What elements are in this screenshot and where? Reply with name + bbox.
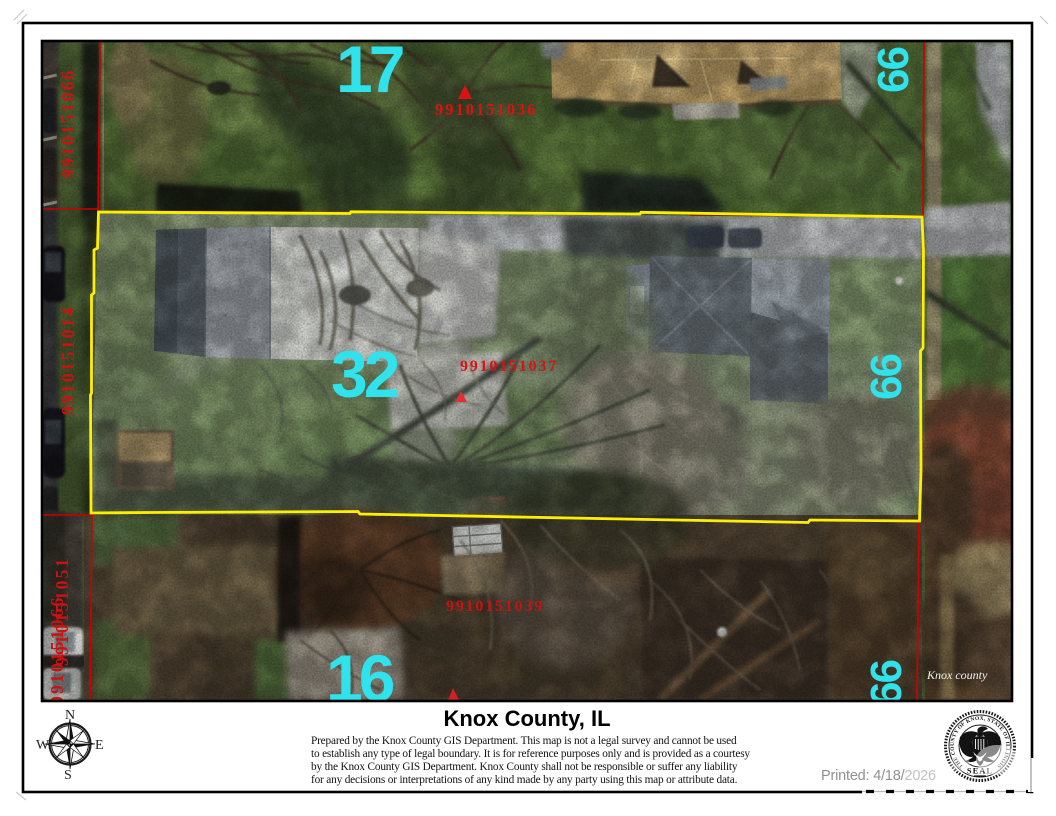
svg-text:9910151066: 9910151066 xyxy=(58,69,78,179)
svg-text:66: 66 xyxy=(869,48,918,93)
svg-text:16: 16 xyxy=(326,641,394,715)
svg-text:Knox county: Knox county xyxy=(926,668,988,682)
svg-text:9910151039: 9910151039 xyxy=(446,598,544,615)
svg-text:Prepared by the Knox County GI: Prepared by the Knox County GIS Departme… xyxy=(311,735,737,747)
svg-text:32: 32 xyxy=(331,337,399,411)
svg-text:for any decisions or interpret: for any decisions or interpretations of … xyxy=(311,774,738,786)
svg-text:to establish any type of legal: to establish any type of legal boundary.… xyxy=(311,748,750,760)
svg-text:17: 17 xyxy=(336,32,403,106)
svg-text:9910151014: 9910151014 xyxy=(58,306,78,416)
svg-text:Printed: 4/18/2026: Printed: 4/18/2026 xyxy=(821,768,936,784)
svg-text:S: S xyxy=(64,768,72,783)
svg-text:Knox County, IL: Knox County, IL xyxy=(443,706,610,731)
svg-text:by the Knox County GIS Departm: by the Knox County GIS Department. Knox … xyxy=(311,761,738,773)
svg-text:N: N xyxy=(65,708,75,723)
svg-text:66: 66 xyxy=(862,355,911,400)
svg-text:66: 66 xyxy=(862,661,911,706)
svg-text:9910151037: 9910151037 xyxy=(460,358,558,375)
svg-text:E: E xyxy=(95,738,104,753)
svg-text:W: W xyxy=(36,738,50,753)
svg-text:9910151036: 9910151036 xyxy=(435,100,538,119)
svg-text:9910151066: 9910151066 xyxy=(47,596,67,706)
